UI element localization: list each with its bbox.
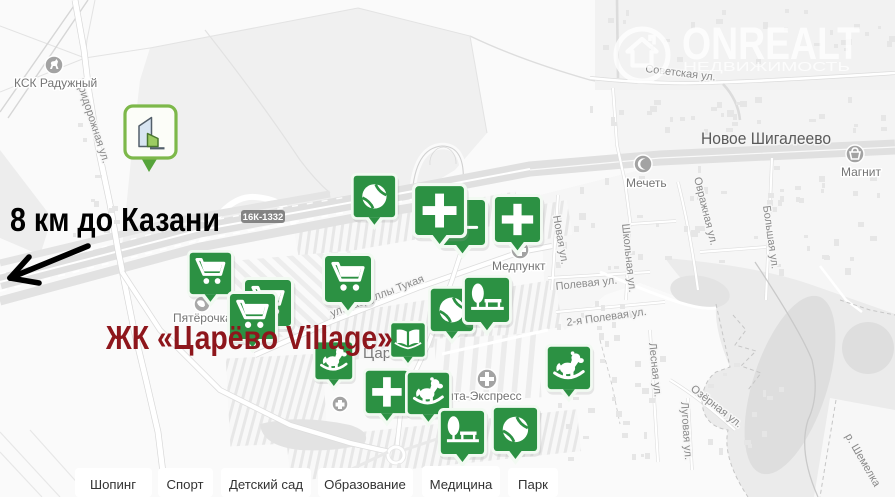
svg-text:8 км до Казани: 8 км до Казани: [10, 201, 220, 238]
svg-text:Медпункт: Медпункт: [492, 259, 546, 273]
svg-text:КСК Радужный: КСК Радужный: [14, 76, 97, 90]
svg-text:16К-1332: 16К-1332: [243, 212, 284, 223]
svg-text:Медицина: Медицина: [430, 477, 493, 492]
svg-text:НЕДВИЖИМОСТЬ: НЕДВИЖИМОСТЬ: [683, 59, 850, 74]
svg-text:Мечеть: Мечеть: [626, 176, 667, 190]
svg-text:Детский сад: Детский сад: [229, 477, 303, 492]
svg-text:Спорт: Спорт: [166, 477, 203, 492]
svg-text:Парк: Парк: [518, 477, 548, 492]
svg-text:Образование: Образование: [324, 477, 406, 492]
svg-text:ЖК «Царёво Village»: ЖК «Царёво Village»: [105, 319, 393, 356]
svg-text:Новое Шигалеево: Новое Шигалеево: [701, 129, 831, 148]
svg-text:Магнит: Магнит: [841, 165, 882, 179]
svg-text:Шопинг: Шопинг: [90, 477, 136, 492]
